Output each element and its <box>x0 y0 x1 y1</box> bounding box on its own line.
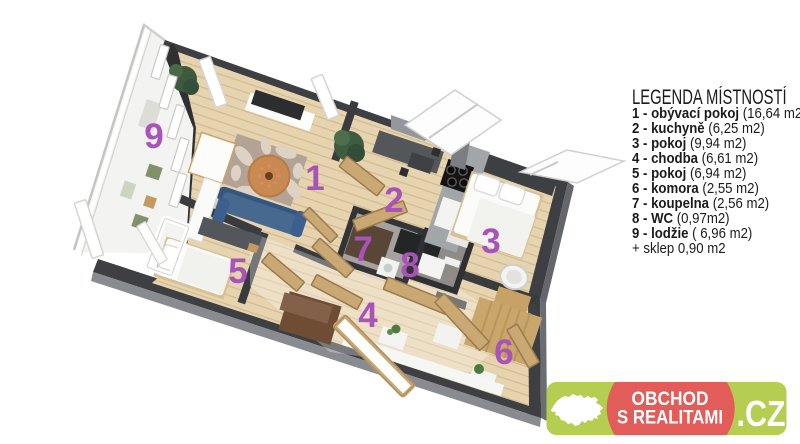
svg-text:5: 5 <box>228 252 247 291</box>
svg-text:3: 3 <box>481 222 500 261</box>
svg-text:.CZ: .CZ <box>737 393 786 434</box>
svg-text:1: 1 <box>305 159 324 198</box>
svg-text:7: 7 <box>353 230 372 269</box>
svg-text:6: 6 <box>494 333 513 372</box>
svg-text:2: 2 <box>384 181 403 220</box>
svg-text:S REALITAMI: S REALITAMI <box>617 408 723 429</box>
svg-text:8: 8 <box>400 246 419 285</box>
svg-text:4: 4 <box>358 296 378 335</box>
svg-text:9: 9 <box>144 117 163 156</box>
